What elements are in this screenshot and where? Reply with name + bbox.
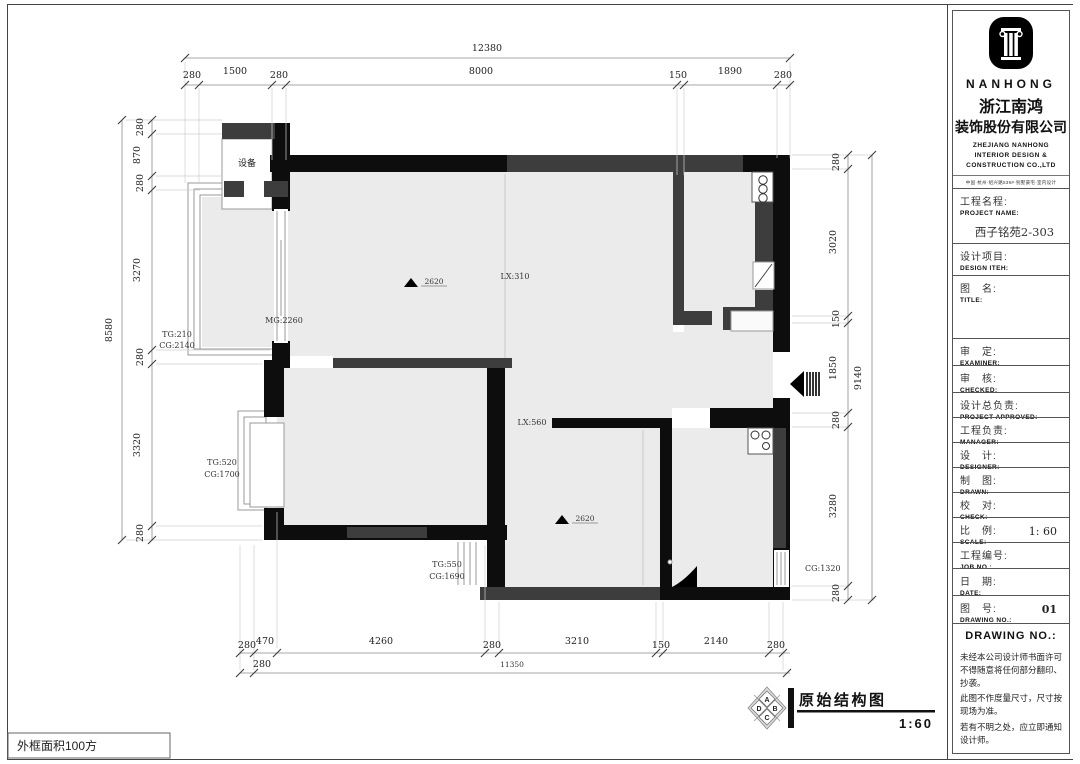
- row-label-zh: 工程编号:: [960, 547, 1069, 562]
- row-label-en: DESIGN ITEH:: [960, 265, 1069, 272]
- tb-row-examiner: 审 定: EXAMINER:: [953, 338, 1069, 365]
- area-note: 外框面积100方: [17, 738, 97, 753]
- door-label: MG:2260: [265, 316, 303, 325]
- company-name-en-line: INTERIOR DESIGN &: [953, 151, 1069, 161]
- tb-row-manager: 工程负责: MANAGER:: [953, 417, 1069, 442]
- tb-row-designer: 设 计: DESIGNER:: [953, 442, 1069, 467]
- tb-row-job-no: 工程编号: JOB NO.:: [953, 542, 1069, 568]
- dim-label: 280: [767, 640, 785, 651]
- brand-name: NANHONG: [953, 77, 1069, 91]
- dim-label: 11350: [500, 660, 524, 669]
- dim-label: 1850: [828, 356, 839, 380]
- notice-line: 未经本公司设计师书面许可不得随意将任何部分翻印、抄袭。: [960, 651, 1062, 691]
- dim-label: 280: [253, 659, 271, 670]
- company-address: 中国·杭州·绍兴路539#·别墅豪宅·室内设计: [953, 175, 1069, 188]
- tb-row-title: 图 名: TITLE:: [953, 275, 1069, 338]
- drawing-sheet: 12380 280 1500 280 8000 150 1890 280 858…: [0, 0, 1080, 764]
- dim-label: 150: [652, 640, 670, 651]
- title-block-inner: NANHONG 浙江南鸿 装饰股份有限公司 ZHEJIANG NANHONG I…: [952, 10, 1070, 754]
- floor-plan: 12380 280 1500 280 8000 150 1890 280 858…: [0, 0, 945, 764]
- dim-label: 1500: [223, 66, 247, 77]
- tb-row-checked: 审 核: CHECKED:: [953, 365, 1069, 392]
- tb-row-date: 日 期: DATE:: [953, 568, 1069, 595]
- window-label: CG:1690: [429, 572, 465, 581]
- row-label-zh: 校 对:: [960, 497, 1069, 512]
- dim-label: 150: [669, 70, 687, 81]
- tb-row-scale: 比 例: SCALE: 1: 60: [953, 517, 1069, 542]
- title-underline: [797, 710, 935, 713]
- title-block: NANHONG 浙江南鸿 装饰股份有限公司 ZHEJIANG NANHONG I…: [947, 5, 1074, 759]
- window-label: CG:1320: [805, 564, 841, 573]
- tb-row-check: 校 对: CHECK:: [953, 492, 1069, 517]
- door-swing: [753, 262, 774, 289]
- row-label-zh: 日 期:: [960, 573, 1069, 588]
- window-label: TG:520: [207, 458, 237, 467]
- elevation-compass-icon: A B C D: [748, 687, 794, 729]
- company-name-cn: 装饰股份有限公司: [953, 117, 1069, 137]
- dim-label: 3280: [828, 494, 839, 518]
- row-label-en: PROJECT NAME:: [960, 210, 1069, 217]
- notice-header: DRAWING NO.:: [953, 623, 1069, 647]
- dim-label: 280: [270, 70, 288, 81]
- dim-label: 280: [135, 174, 146, 192]
- row-label-en: TITLE:: [960, 297, 1069, 304]
- dim-label: 280: [183, 70, 201, 81]
- window-label: TG:550: [432, 560, 462, 569]
- dim-label: 150: [831, 310, 842, 328]
- row-label-zh: 工程名程:: [960, 193, 1069, 208]
- row-label-zh: 图 名:: [960, 280, 1069, 295]
- project-name-value: 西子铭苑2-303: [960, 224, 1069, 240]
- window-label: TG:210: [162, 330, 192, 339]
- notice-text: 未经本公司设计师书面许可不得随意将任何部分翻印、抄袭。 此图不作度量尺寸，尺寸按…: [953, 647, 1069, 753]
- company-name-en-line: CONSTRUCTION CO.,LTD: [953, 161, 1069, 171]
- dim-label: 3270: [132, 258, 143, 282]
- company-name-en: ZHEJIANG NANHONG INTERIOR DESIGN & CONST…: [953, 141, 1069, 170]
- dim-label: 870: [132, 146, 143, 164]
- tb-row-project-approved: 设计总负责: PROJECT APPROVED:: [953, 392, 1069, 417]
- tb-row-project-name: 工程名程: PROJECT NAME: 西子铭苑2-303: [953, 188, 1069, 243]
- dim-label: 280: [135, 524, 146, 542]
- dim-label: 4260: [369, 636, 393, 647]
- entry-arrow-icon: [790, 371, 819, 397]
- dim-label: 12380: [472, 43, 502, 54]
- row-label-zh: 审 定:: [960, 343, 1069, 358]
- row-label-zh: 设计总负责:: [960, 397, 1069, 412]
- company-name-en-line: ZHEJIANG NANHONG: [953, 141, 1069, 151]
- dim-label: 280: [238, 640, 256, 651]
- window-label: CG:2140: [159, 341, 195, 350]
- dim-label: 470: [256, 636, 274, 647]
- row-label-zh: 制 图:: [960, 472, 1069, 487]
- beam-label: LX:310: [501, 272, 530, 281]
- dim-label: 3020: [828, 230, 839, 254]
- scale-value: 1: 60: [1029, 525, 1057, 538]
- beam-height-label: 2620: [424, 277, 443, 286]
- compass-letter: D: [756, 706, 761, 713]
- dim-label: 280: [135, 118, 146, 136]
- dim-label: 1890: [718, 66, 742, 77]
- tb-row-drawing-no: 图 号: DRAWING NO.: 01: [953, 595, 1069, 623]
- notice-line: 此图不作度量尺寸，尺寸按现场为准。: [960, 692, 1062, 718]
- company-header: NANHONG 浙江南鸿 装饰股份有限公司 ZHEJIANG NANHONG I…: [953, 11, 1069, 188]
- row-label-zh: 工程负责:: [960, 422, 1069, 437]
- dim-label: 9140: [853, 366, 864, 390]
- dim-label: 280: [831, 153, 842, 171]
- compass-letter: A: [764, 697, 769, 704]
- dim-label: 280: [831, 584, 842, 602]
- notice-line: 若有不明之处，应立即通知设计师。: [960, 721, 1062, 747]
- equipment-room: [222, 139, 272, 209]
- beam-label: LX:560: [518, 418, 547, 427]
- row-label-zh: 设计项目:: [960, 248, 1069, 263]
- dim-label: 280: [135, 348, 146, 366]
- dim-label: 8000: [469, 66, 493, 77]
- drawing-no-value: 01: [1042, 603, 1057, 616]
- drawing-scale: 1:60: [899, 716, 933, 731]
- stove-fixture: [748, 428, 773, 454]
- kitchen-fixture: [752, 172, 773, 202]
- dim-label: 3210: [565, 636, 589, 647]
- room-label-equipment: 设备: [238, 157, 256, 168]
- beam-height-label: 2620: [575, 514, 594, 523]
- compass-letter: C: [764, 715, 769, 722]
- tb-row-design-item: 设计项目: DESIGN ITEH:: [953, 243, 1069, 275]
- dim-label: 280: [831, 411, 842, 429]
- window-label: CG:1700: [204, 470, 240, 479]
- row-label-en: DRAWING NO.:: [960, 617, 1069, 624]
- dim-label: 8580: [104, 318, 115, 342]
- dim-label: 2140: [704, 636, 728, 647]
- dim-label: 3320: [132, 433, 143, 457]
- dim-label: 280: [774, 70, 792, 81]
- company-logo-icon: [989, 17, 1033, 69]
- row-label-zh: 审 核:: [960, 370, 1069, 385]
- drawing-title: 原始结构图: [799, 691, 887, 709]
- dim-label: 280: [483, 640, 501, 651]
- row-label-zh: 设 计:: [960, 447, 1069, 462]
- tb-row-drawn: 制 图: DRAWN:: [953, 467, 1069, 492]
- company-name-cn: 浙江南鸿: [953, 93, 1069, 117]
- compass-letter: B: [772, 706, 777, 713]
